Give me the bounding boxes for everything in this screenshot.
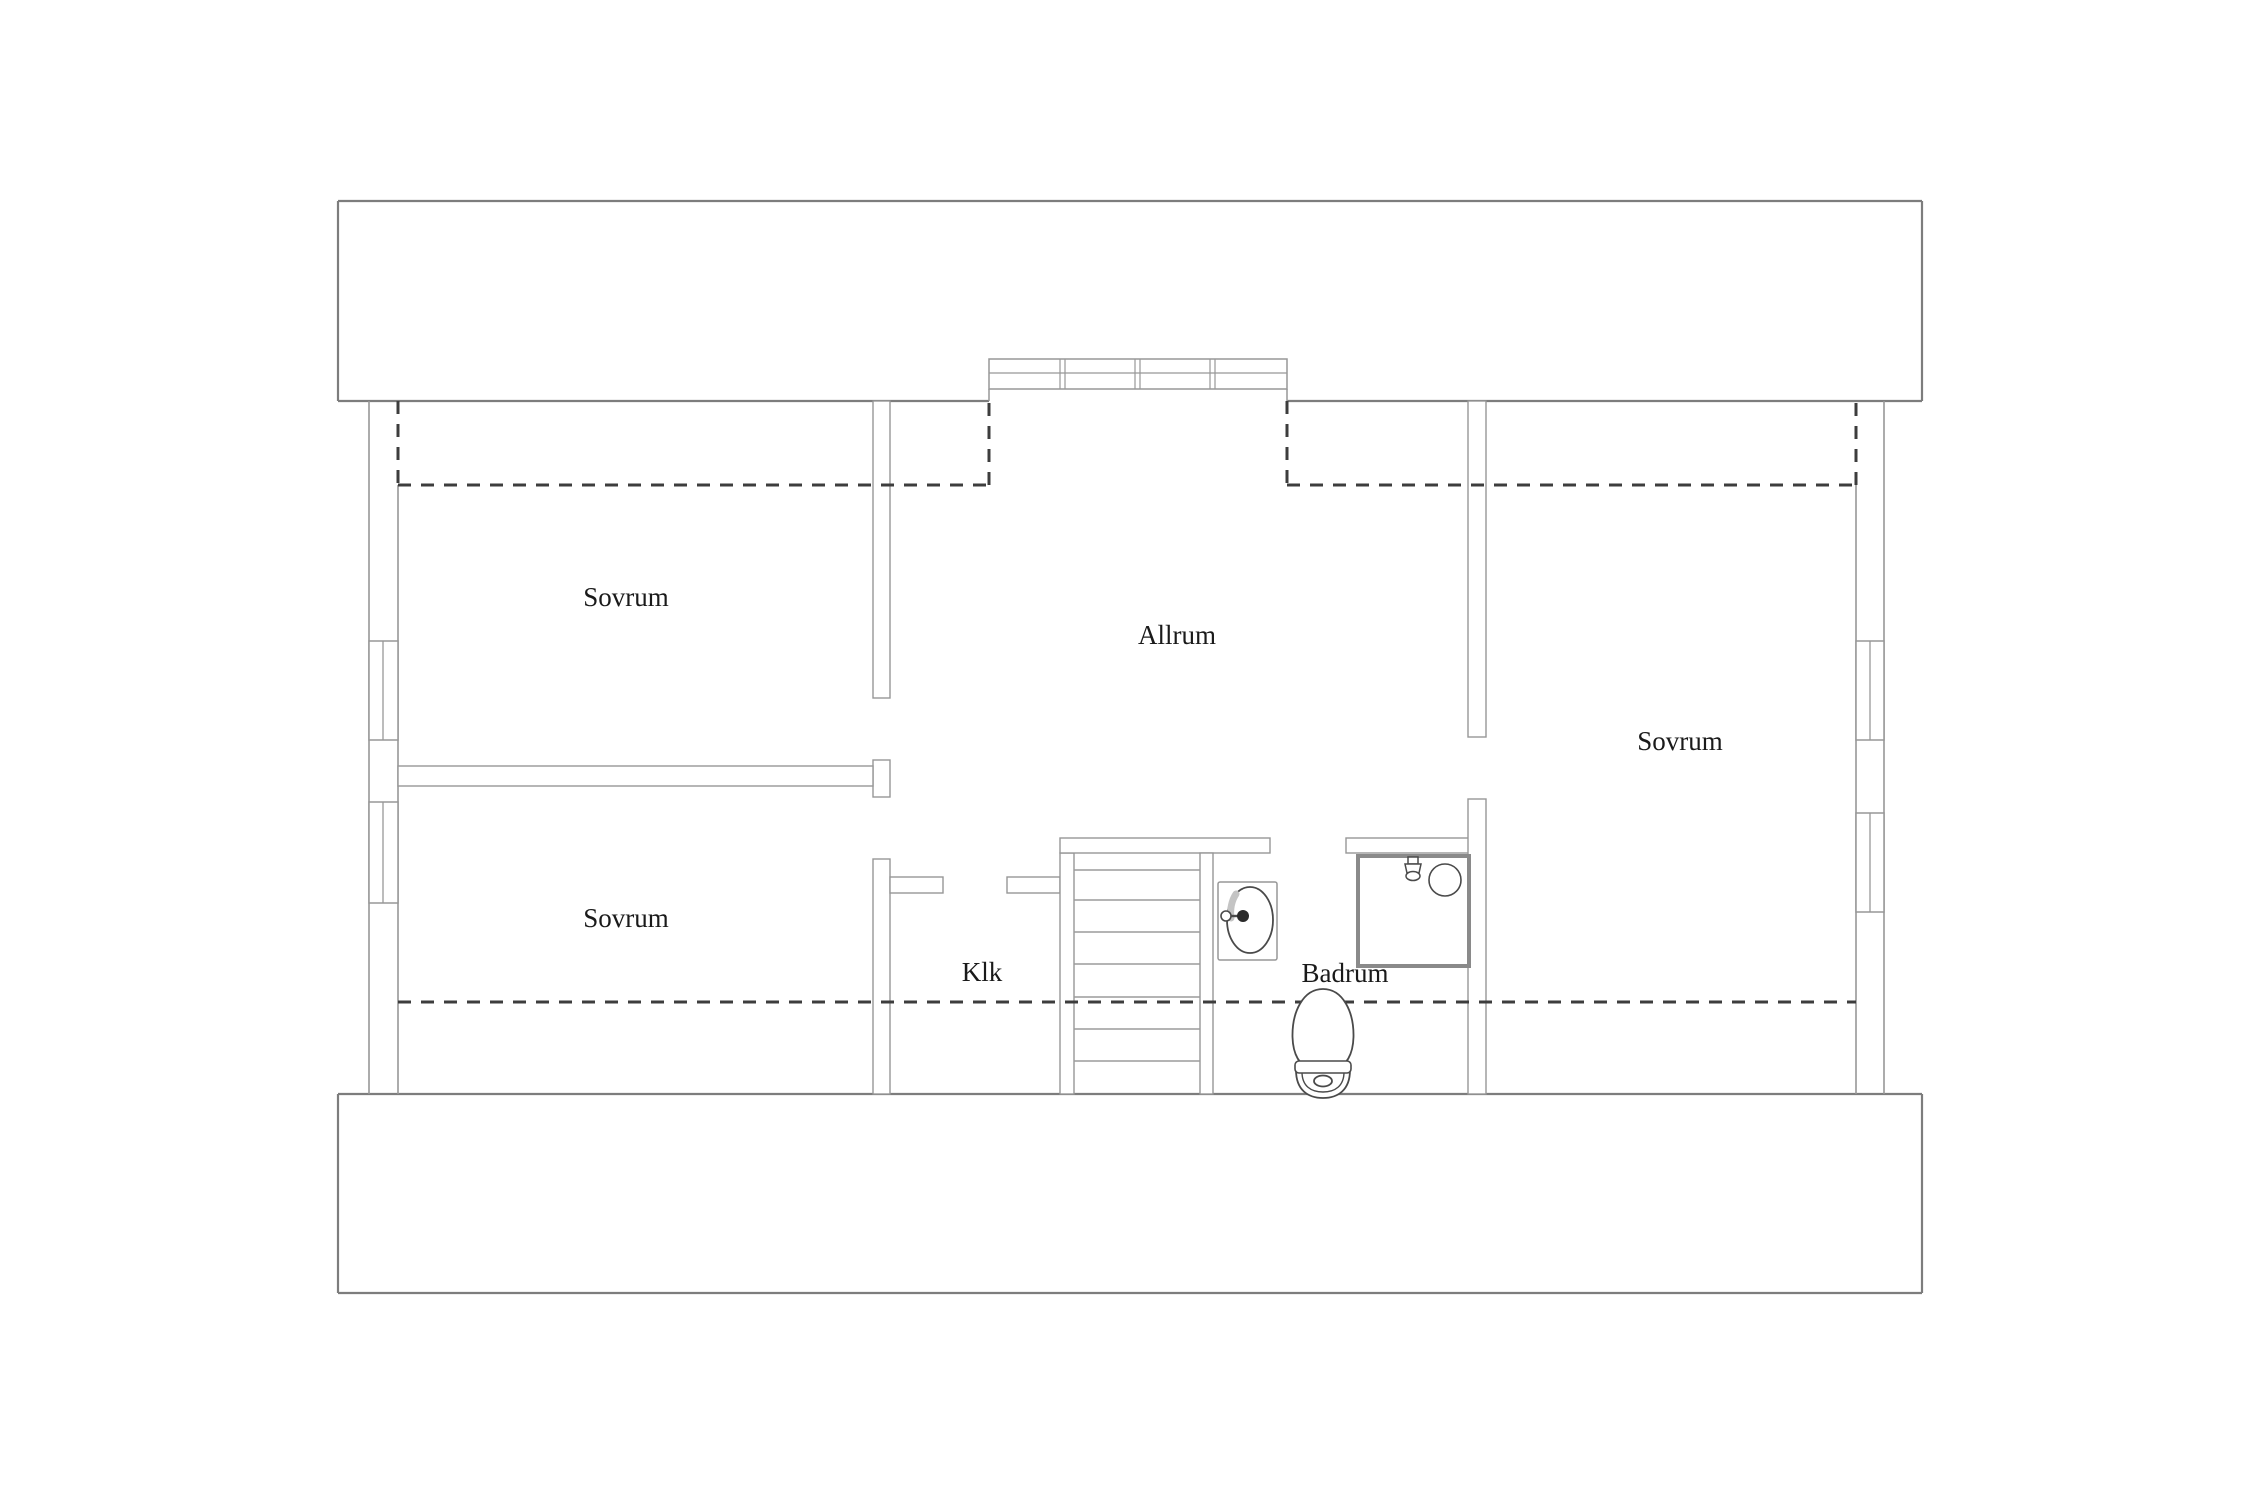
toilet <box>1292 989 1353 1098</box>
right-window-upper <box>1856 641 1884 740</box>
floor-plan-drawing: SovrumSovrumAllrumSovrumKlkBadrum <box>0 0 2250 1500</box>
shower-valve <box>1408 857 1418 864</box>
wall-klk-door-stub-right <box>1007 877 1060 893</box>
sink <box>1218 882 1277 960</box>
staircase <box>1074 870 1200 1061</box>
sink-tap-spout <box>1237 910 1249 922</box>
room-label-sovrum-right: Sovrum <box>1637 726 1723 756</box>
dormer-frame <box>989 359 1287 389</box>
wall-klk-left <box>873 859 890 1094</box>
room-label-sovrum-top-left: Sovrum <box>583 582 669 612</box>
bottom-band <box>338 1094 1922 1293</box>
shower-drain <box>1429 864 1461 896</box>
wall-klk-door-stub-left <box>890 877 943 893</box>
stairs-layer <box>1074 870 1200 1061</box>
wall-badrum-top <box>1346 838 1469 853</box>
wall-klk-stair <box>1060 853 1074 1094</box>
sink-tap-knob <box>1221 911 1231 921</box>
wall-sovrumTL-allrum <box>873 401 890 698</box>
wall-t-cap <box>873 760 890 797</box>
toilet-flush-button <box>1314 1076 1332 1087</box>
wall-stair-right <box>1200 853 1213 1094</box>
wall-allrum-sovrumR <box>1468 401 1486 737</box>
wall-between-left-sovrum <box>398 766 873 786</box>
room-label-badrum: Badrum <box>1302 958 1389 988</box>
right-window-lower <box>1856 813 1884 912</box>
floor-plan-page: SovrumSovrumAllrumSovrumKlkBadrum <box>0 0 2250 1500</box>
left-window-upper <box>369 641 398 740</box>
room-label-sovrum-bottom-left: Sovrum <box>583 903 669 933</box>
windows-layer <box>369 359 1884 912</box>
bottom-band-fill <box>338 1094 1922 1293</box>
toilet-seat-hinge <box>1295 1061 1351 1073</box>
room-label-klk: Klk <box>962 957 1003 987</box>
wall-stair-top <box>1060 838 1270 853</box>
toilet-lid <box>1292 989 1353 1068</box>
shower <box>1358 856 1469 966</box>
shower-head-face <box>1406 872 1420 881</box>
left-window-lower <box>369 802 398 903</box>
room-label-allrum: Allrum <box>1138 620 1216 650</box>
